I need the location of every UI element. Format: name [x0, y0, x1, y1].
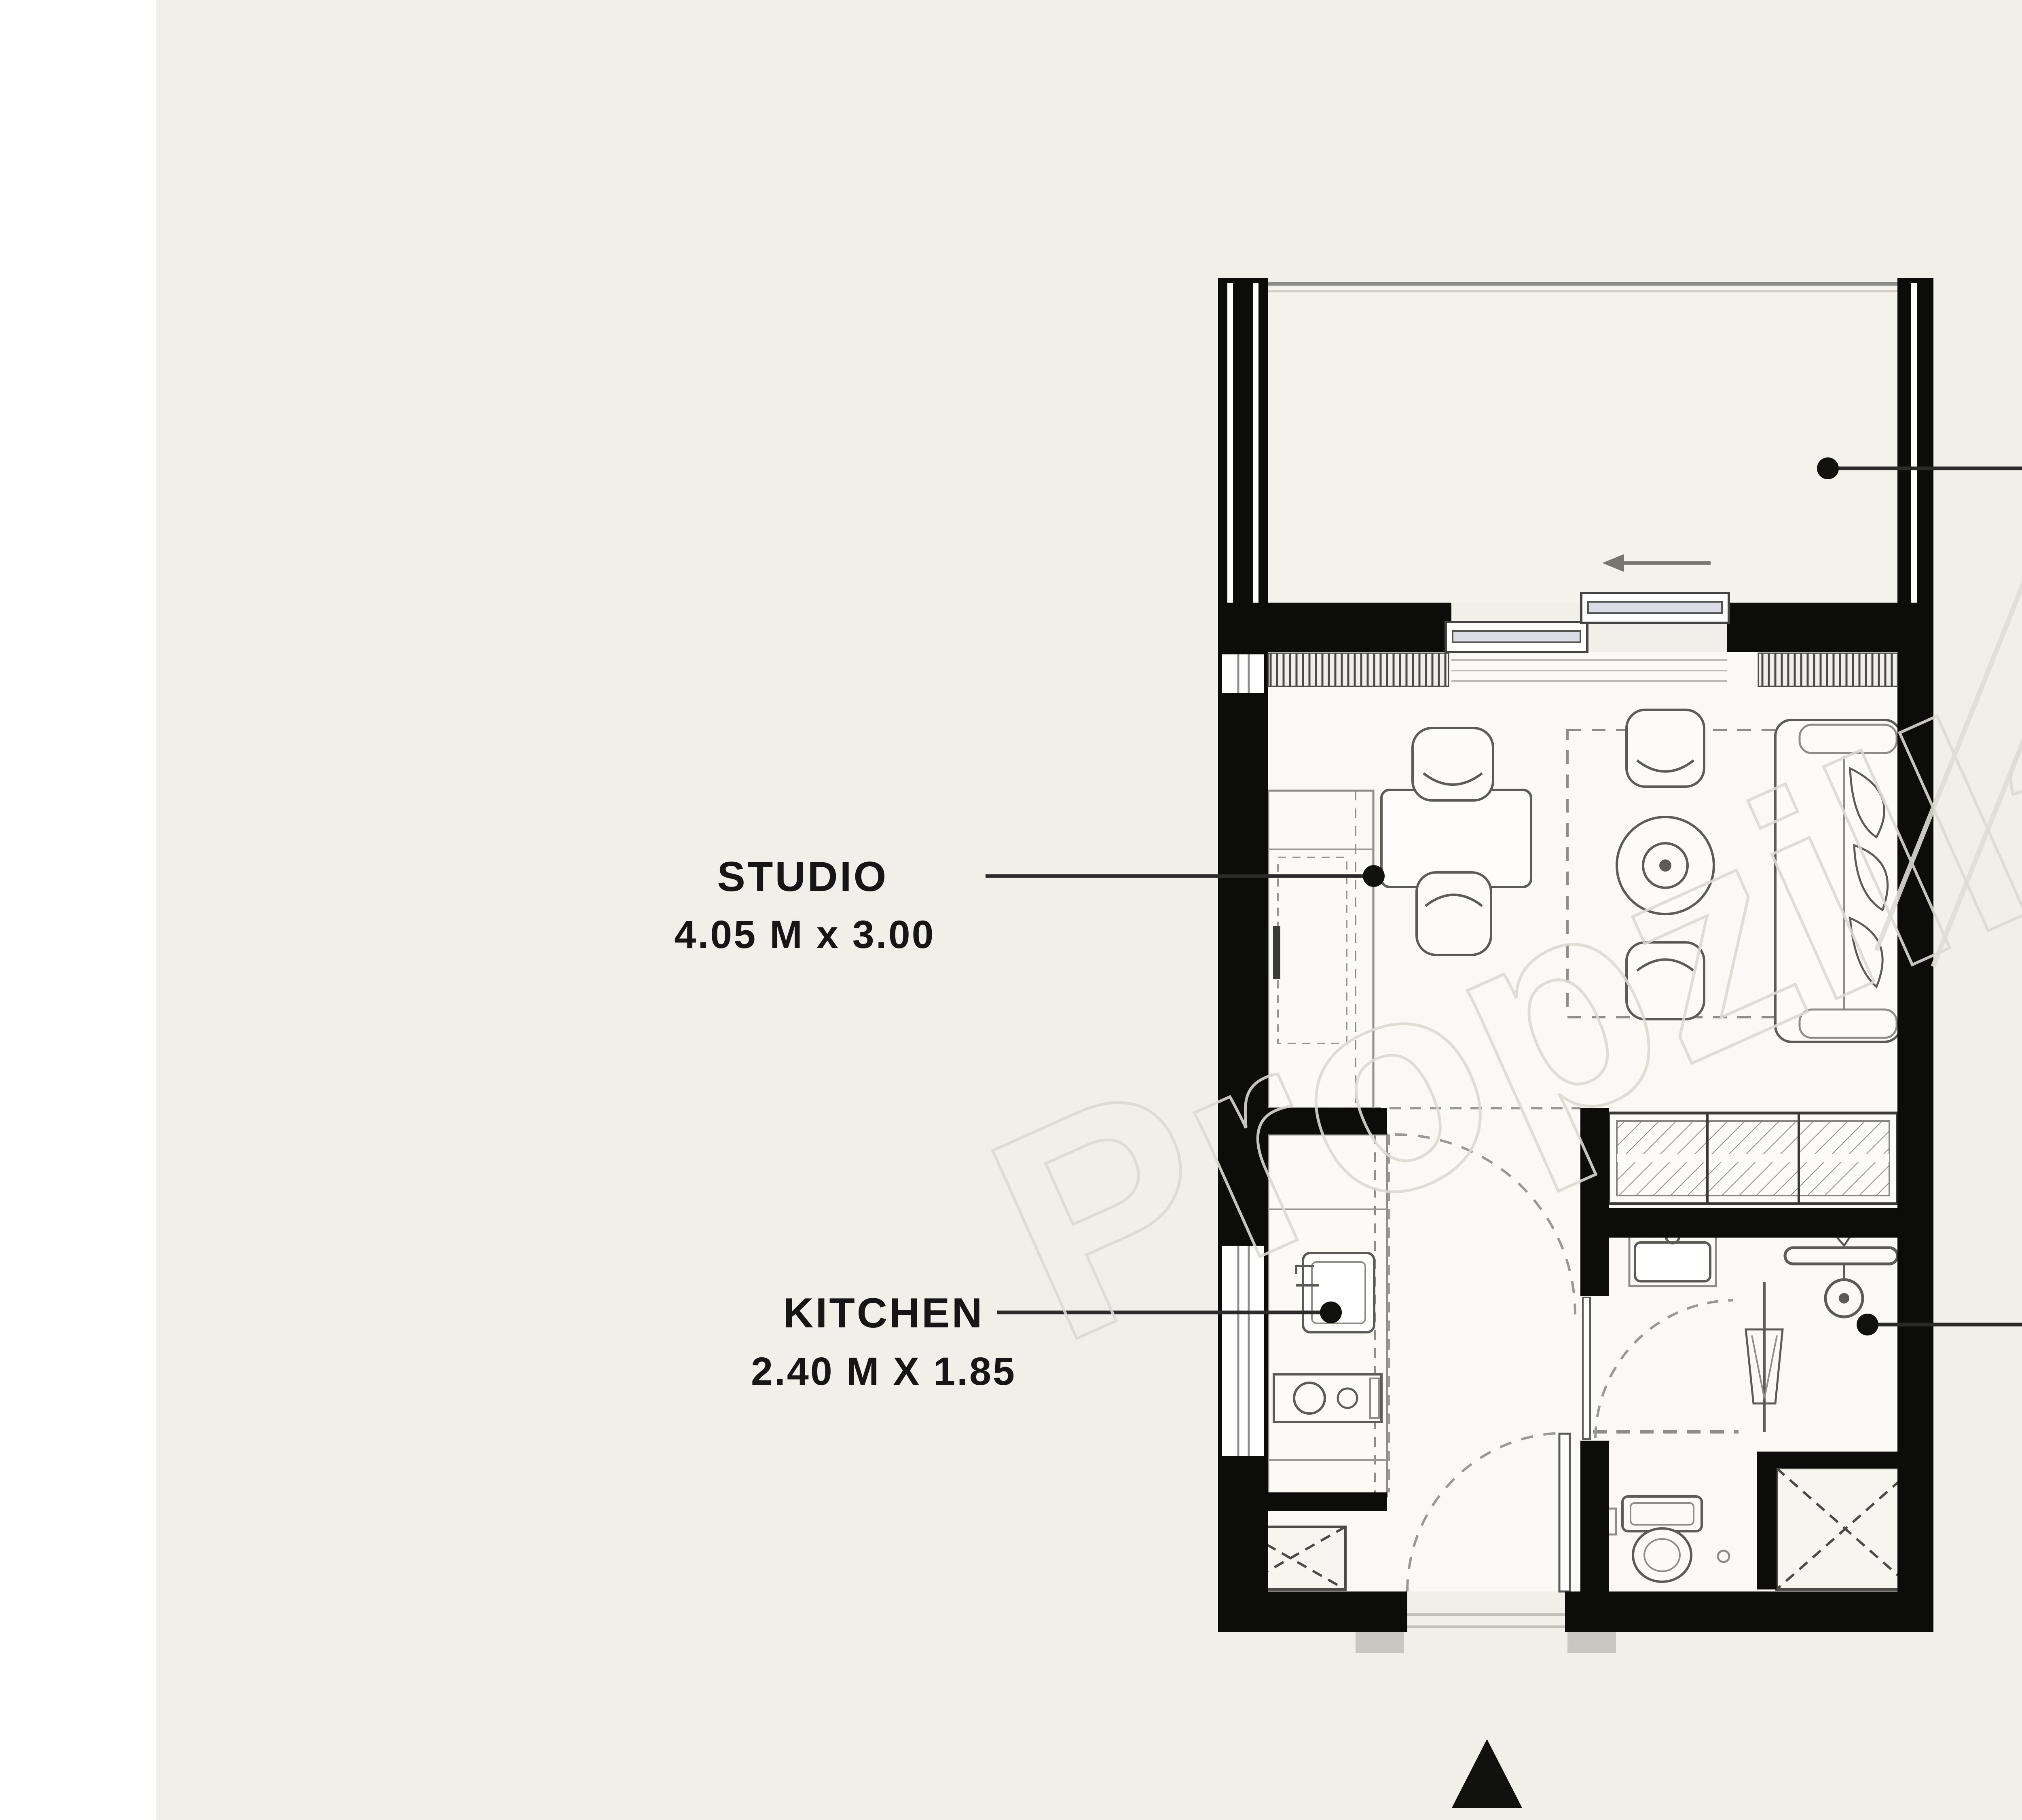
terrace-wall-right — [1727, 603, 1933, 652]
floor-plan-page: TERRACE 3.95 M X 1.75 STUDIO 4.05 M x 3.… — [0, 0, 2022, 1820]
terrace-floor — [1268, 287, 1897, 603]
kitchen-dimensions: 2.40 M X 1.85 — [751, 1349, 1016, 1393]
studio-dimensions: 4.05 M x 3.00 — [674, 912, 935, 957]
stove-icon — [1274, 1374, 1381, 1422]
bathroom-shaft — [1777, 1468, 1914, 1589]
left-margin — [0, 0, 156, 1820]
kitchen-label: KITCHEN — [783, 1290, 984, 1337]
kitchen-bottom-stub — [1218, 1492, 1387, 1511]
terrace-wall-left — [1218, 603, 1451, 652]
door-frame-tab-left — [1356, 1632, 1404, 1653]
floor-plan-canvas: TERRACE 3.95 M X 1.75 STUDIO 4.05 M x 3.… — [0, 0, 2022, 1820]
studio-window — [1222, 654, 1264, 693]
bottom-wall-right — [1565, 1591, 1933, 1632]
dining-chair-top — [1413, 728, 1493, 800]
bathroom-top-wall — [1580, 1208, 1933, 1238]
door-frame-tab-right — [1567, 1632, 1616, 1653]
shaft-side-wall — [1757, 1468, 1777, 1589]
bathroom-door-leaf — [1583, 1297, 1590, 1439]
entry-door-leaf — [1559, 1434, 1570, 1591]
bottom-wall-left — [1218, 1591, 1407, 1632]
shaft-divider-wall — [1757, 1452, 1933, 1468]
bathroom-left-wall-upper — [1580, 1238, 1609, 1296]
studio-label: STUDIO — [717, 853, 888, 900]
bathroom-left-wall-lower — [1580, 1441, 1609, 1591]
